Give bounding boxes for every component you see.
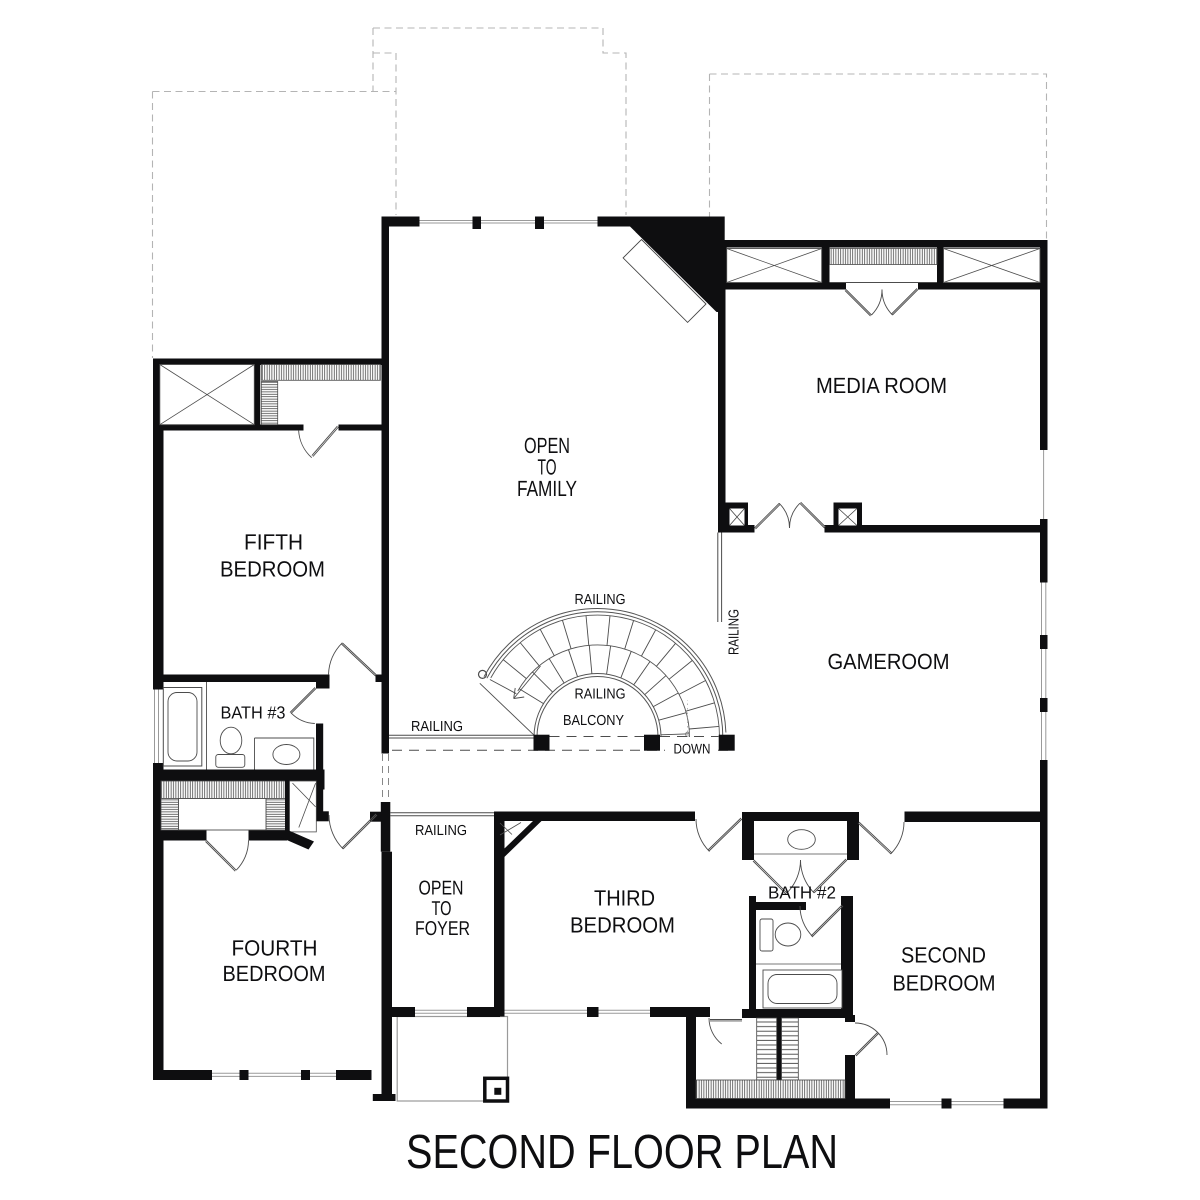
svg-text:BATH #2: BATH #2 (768, 883, 836, 903)
svg-text:GAMEROOM: GAMEROOM (828, 649, 950, 674)
svg-text:RAILING: RAILING (727, 609, 743, 655)
svg-text:RAILING: RAILING (415, 823, 467, 839)
svg-text:SECOND: SECOND (901, 943, 986, 968)
svg-text:THIRD: THIRD (594, 886, 655, 911)
svg-text:SECOND FLOOR PLAN: SECOND FLOOR PLAN (406, 1126, 838, 1179)
svg-text:DOWN: DOWN (674, 741, 711, 757)
svg-text:RAILING: RAILING (575, 687, 626, 703)
svg-text:BEDROOM: BEDROOM (220, 557, 325, 582)
svg-text:BEDROOM: BEDROOM (893, 971, 996, 996)
svg-text:BEDROOM: BEDROOM (570, 913, 675, 938)
svg-text:BALCONY: BALCONY (563, 713, 624, 729)
svg-text:OPEN: OPEN (419, 878, 464, 900)
svg-text:FOYER: FOYER (415, 918, 470, 940)
svg-text:BEDROOM: BEDROOM (223, 961, 326, 986)
svg-text:FOURTH: FOURTH (232, 936, 318, 961)
svg-text:RAILING: RAILING (411, 719, 463, 735)
svg-text:TO: TO (432, 898, 452, 920)
svg-text:BATH #3: BATH #3 (221, 703, 286, 723)
svg-text:RAILING: RAILING (575, 592, 626, 608)
svg-text:FIFTH: FIFTH (244, 530, 303, 555)
svg-text:FAMILY: FAMILY (517, 476, 577, 501)
svg-text:MEDIA ROOM: MEDIA ROOM (816, 373, 947, 398)
